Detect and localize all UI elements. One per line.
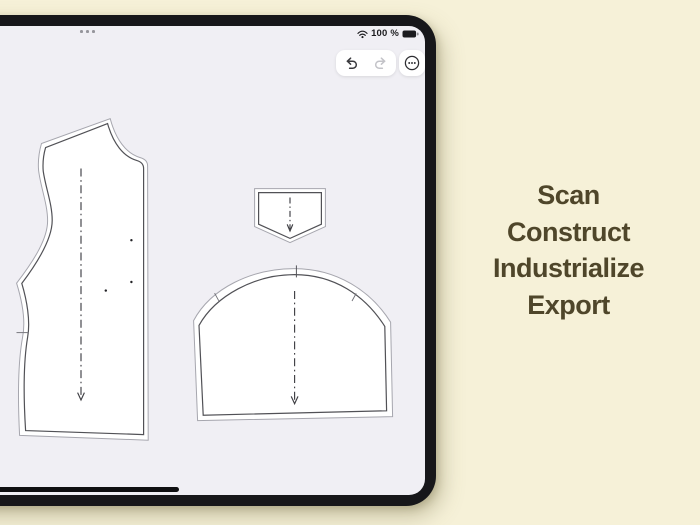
headline-line: Construct — [437, 214, 700, 251]
headline-line: Scan — [437, 177, 700, 214]
page-background: 100 % — [0, 0, 700, 525]
dart-point-dot — [105, 289, 107, 291]
pocket-pattern-piece[interactable] — [255, 189, 326, 243]
headline-line: Export — [437, 287, 700, 324]
bodice-pattern-piece[interactable] — [17, 119, 149, 441]
pattern-canvas[interactable] — [0, 26, 425, 495]
headline: Scan Construct Industrialize Export — [437, 177, 700, 323]
headline-line: Industrialize — [437, 250, 700, 287]
sleeve-pattern-piece[interactable] — [194, 265, 393, 420]
dart-point-dot — [130, 239, 132, 241]
dart-point-dot — [130, 281, 132, 283]
home-indicator[interactable] — [0, 487, 179, 492]
pattern-app-screen[interactable]: 100 % — [0, 26, 425, 495]
ipad-device-frame: 100 % — [0, 15, 436, 506]
